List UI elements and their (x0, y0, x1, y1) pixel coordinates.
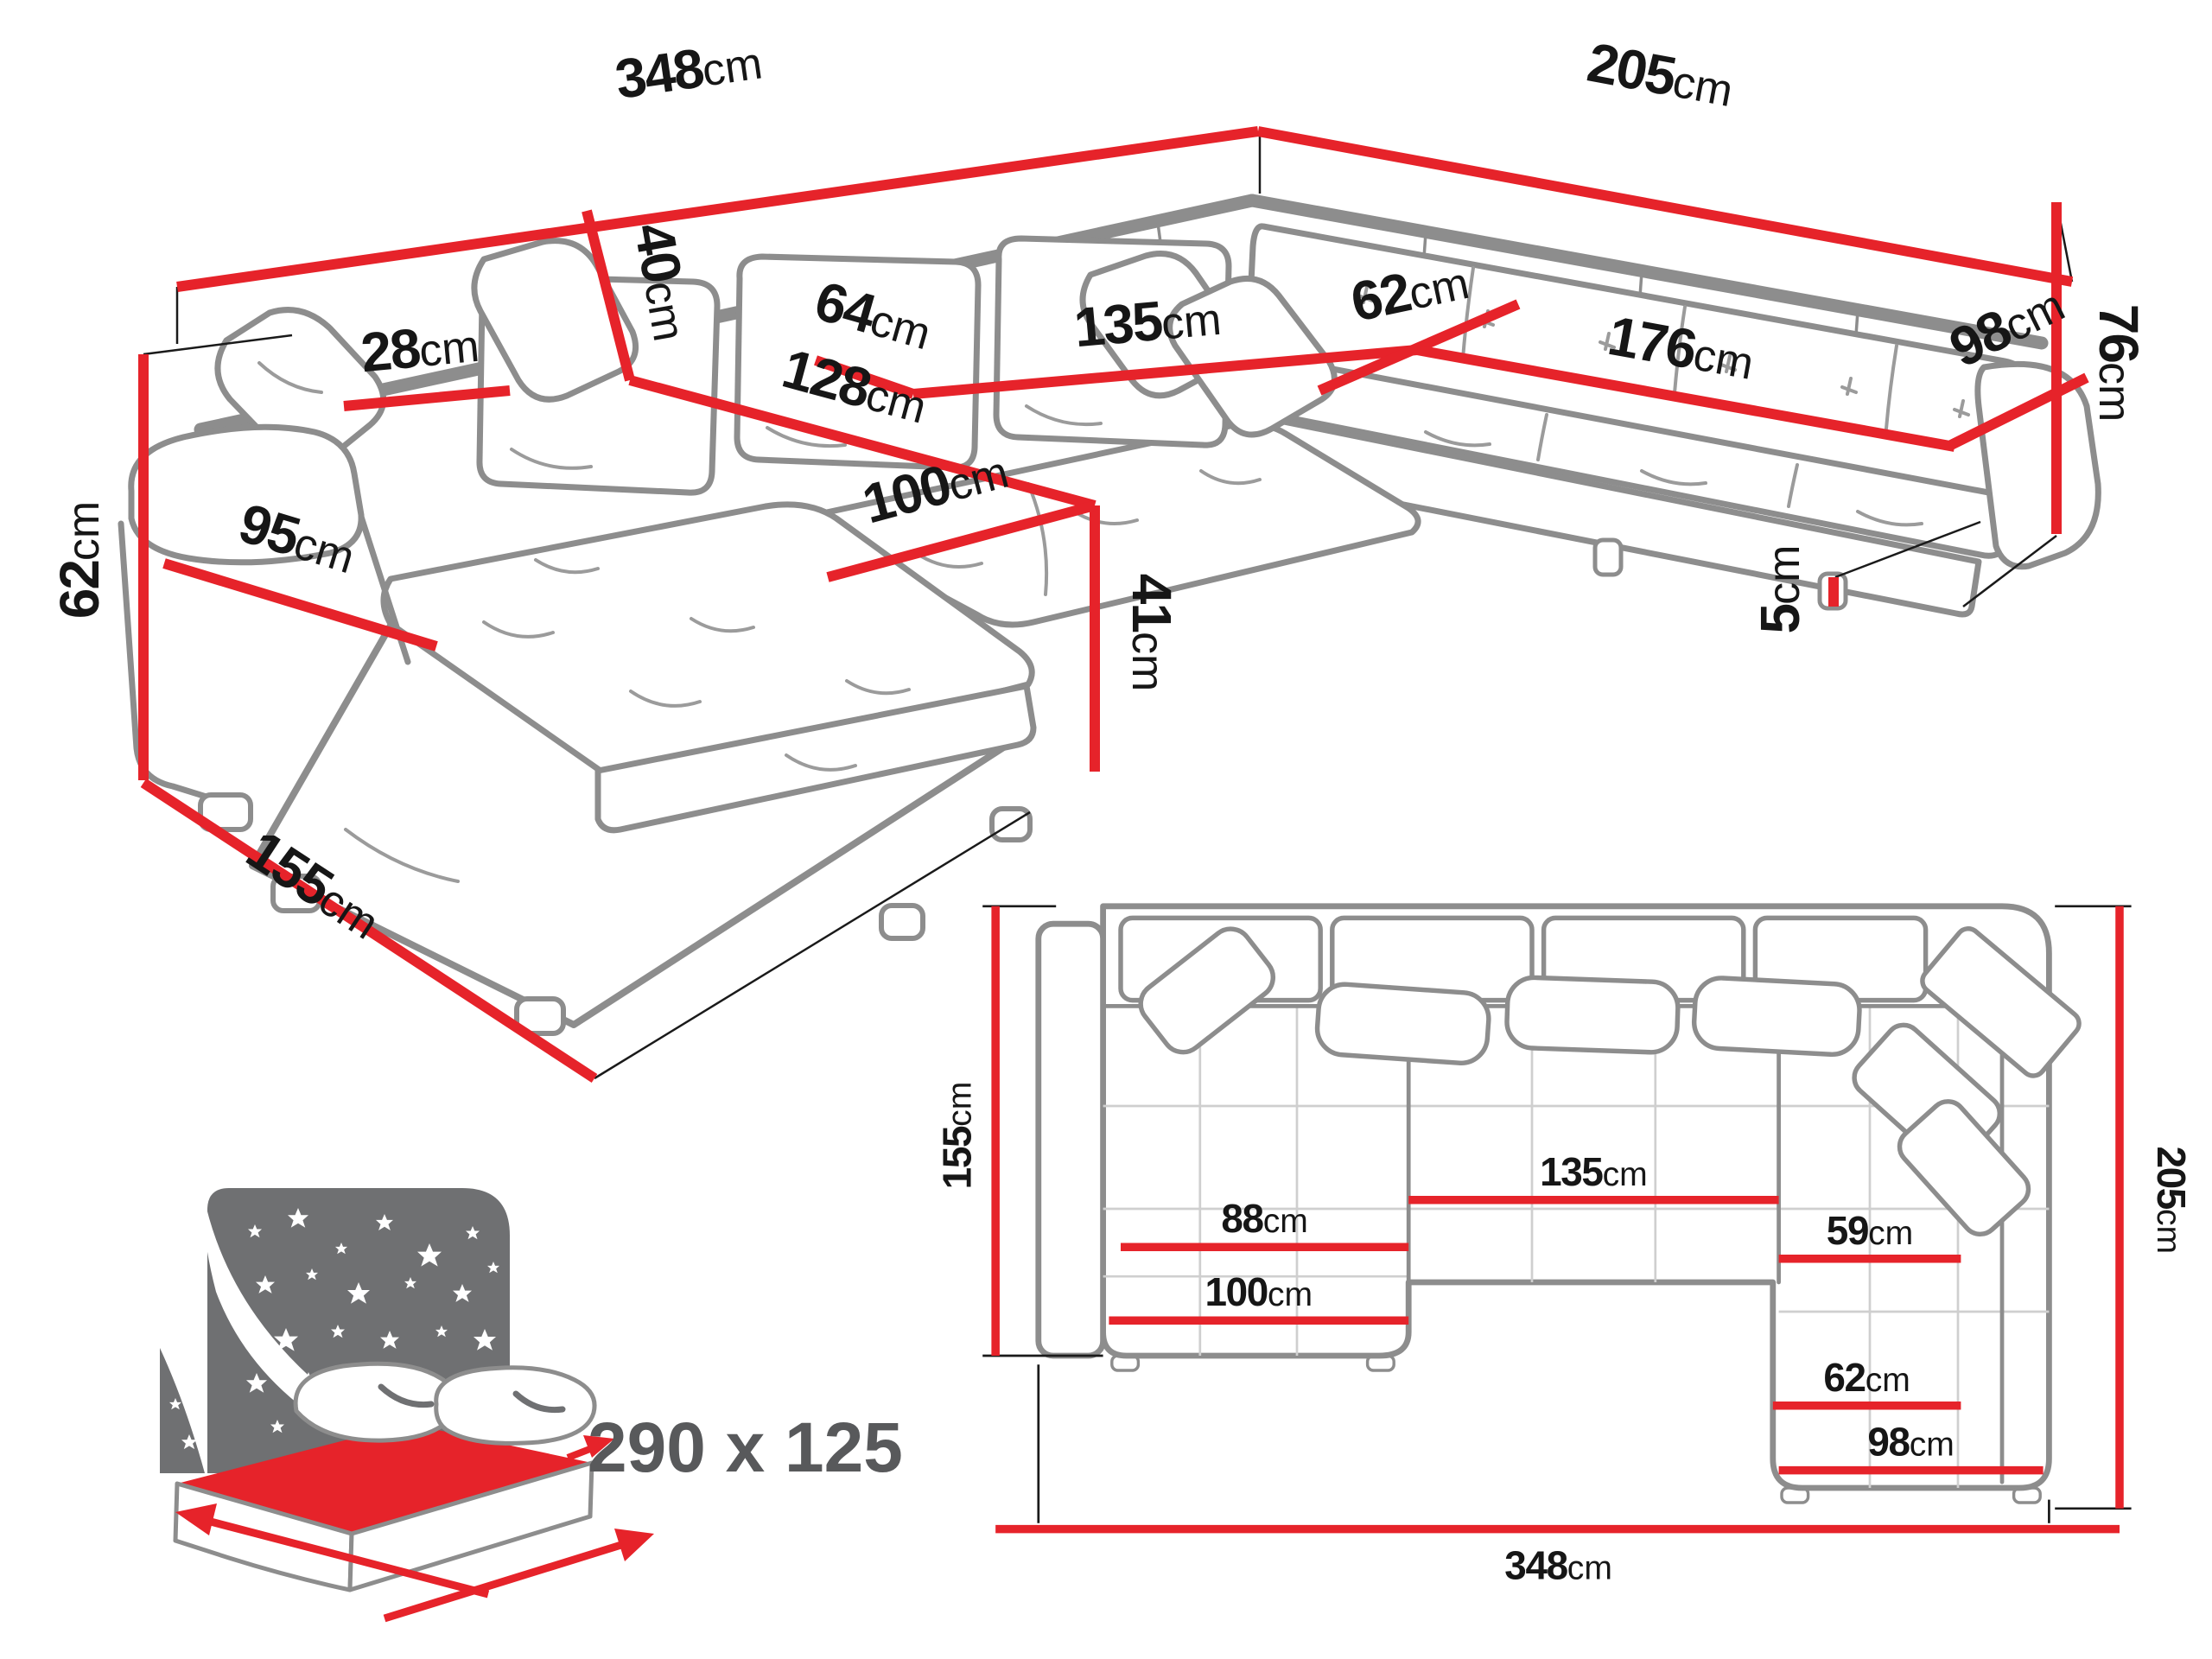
plan-view: 155cm 205cm 348cm 88cm 135cm 59cm 62cm 1… (935, 906, 2195, 1588)
plan-dim-205-label: 205cm (2149, 1146, 2194, 1254)
left-armrest (121, 310, 408, 829)
plan-dim-100-label: 100cm (1205, 1269, 1313, 1314)
plan-dim-155-label: 155cm (935, 1082, 980, 1190)
headboard-left-panel (160, 1348, 205, 1473)
left-chaise (252, 505, 1033, 1033)
plan-left-armrest (1039, 924, 1103, 1356)
dim-41-label: 41cm (1121, 574, 1183, 692)
plan-pillow (1693, 976, 1860, 1055)
sofa-foot (881, 906, 923, 938)
dim-348-label: 348cm (612, 28, 766, 111)
dim-62-left-label: 62cm (48, 501, 111, 620)
right-armrest (1978, 364, 2098, 566)
arrow-head (614, 1529, 654, 1561)
plan-dim-62-label: 62cm (1823, 1355, 1910, 1400)
plan-dim-59-label: 59cm (1827, 1208, 1913, 1253)
dim-155-label: 155cm (236, 818, 393, 950)
bed-pillow (436, 1368, 594, 1444)
sleeping-function-icon: 290 x 125 (160, 1184, 903, 1618)
plan-pillow (1506, 976, 1679, 1052)
plan-pillow (1316, 982, 1491, 1065)
plan-dim-88-label: 88cm (1221, 1196, 1307, 1241)
sleeping-dimensions-label: 290 x 125 (588, 1408, 903, 1487)
plan-dim-98-label: 98cm (1867, 1420, 1954, 1465)
dim-76-label: 76cm (2088, 304, 2150, 423)
diagram-canvas: 348cm 205cm 62cm 155cm 95cm 28cm 40cm 12… (0, 0, 2212, 1659)
armrest-right-pad (1978, 364, 2098, 566)
sofa-foot (1595, 540, 1621, 575)
dimension-diagram: 348cm 205cm 62cm 155cm 95cm 28cm 40cm 12… (0, 0, 2212, 1659)
dim-205-label: 205cm (1583, 31, 1738, 119)
plan-sofa-art (1039, 906, 2084, 1503)
plan-dim-348-label: 348cm (1504, 1542, 1612, 1587)
plan-dim-135-label: 135cm (1540, 1149, 1648, 1194)
